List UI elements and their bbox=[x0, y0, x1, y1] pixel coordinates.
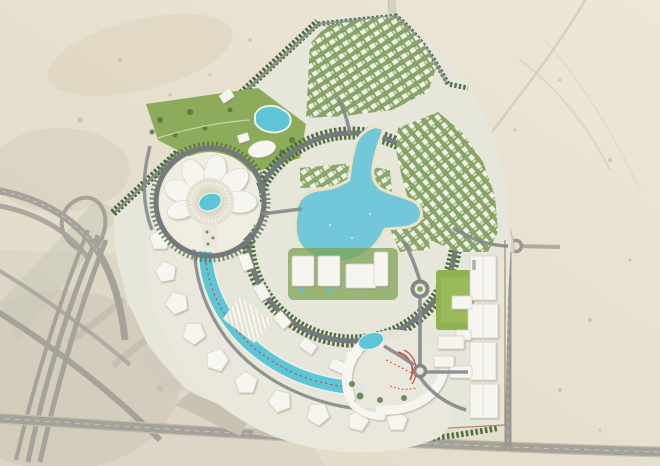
roundabout-south bbox=[415, 366, 426, 377]
masterplan-aerial-view bbox=[0, 0, 660, 466]
masterplan-aerial-image bbox=[0, 0, 660, 466]
hub-walkway bbox=[202, 226, 218, 248]
apartment-blocks bbox=[288, 248, 398, 300]
